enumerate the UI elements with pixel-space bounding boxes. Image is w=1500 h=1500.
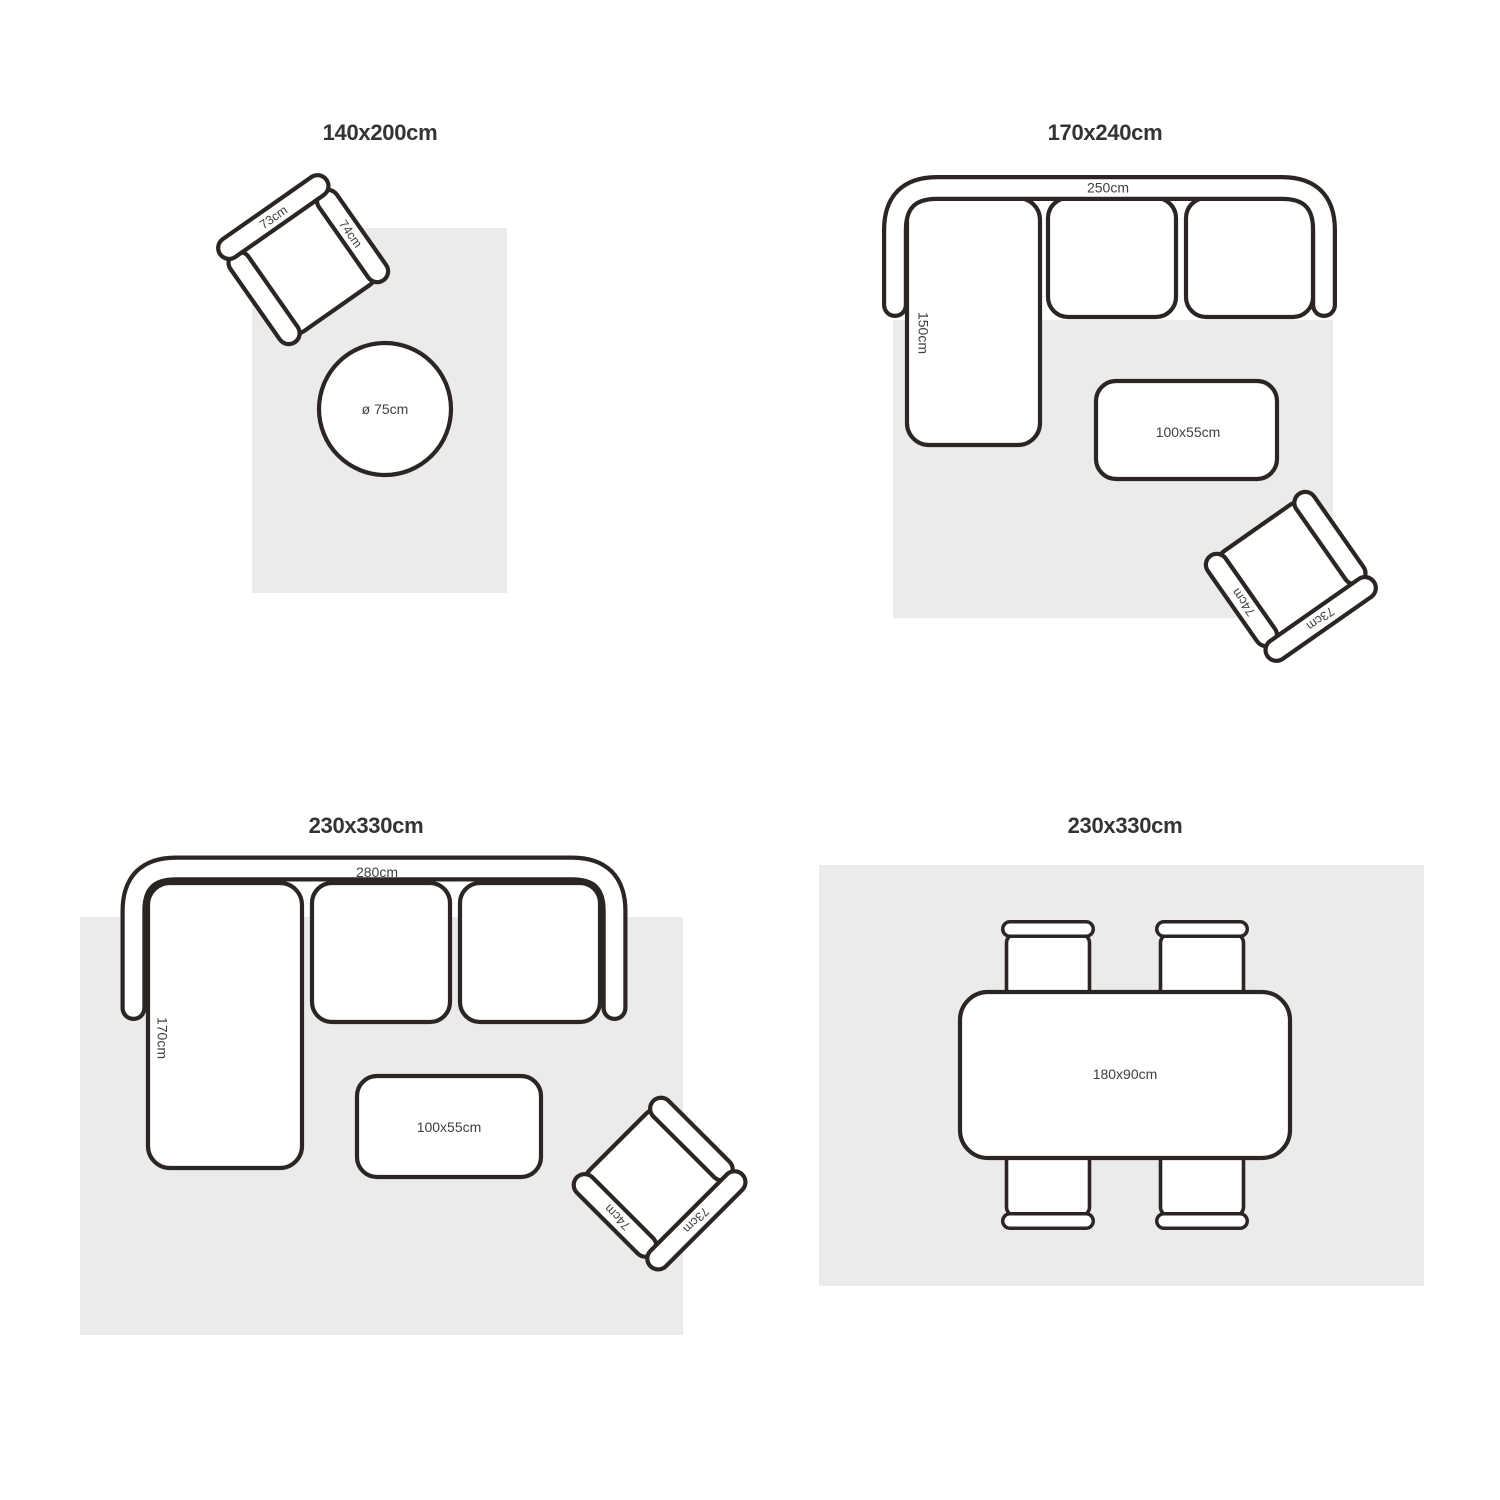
dining-chair bbox=[1007, 1150, 1090, 1221]
panel-rug-230x330-living: 230x330cm 280cm 170cm 100x55cm 73cm 74cm bbox=[80, 813, 739, 1335]
dining-table-size-label: 180x90cm bbox=[1093, 1066, 1158, 1082]
sofa-chaise-depth-label: 150cm bbox=[916, 312, 932, 354]
coffee-table-size-label: 100x55cm bbox=[417, 1119, 482, 1135]
dining-chair bbox=[1161, 929, 1244, 1000]
panel-rug-170x240: 170x240cm 250cm 150cm 100x55cm 73cm 74cm bbox=[893, 120, 1369, 659]
sofa-width-label: 250cm bbox=[1087, 180, 1129, 196]
panel-title: 140x200cm bbox=[323, 120, 438, 145]
panel-title: 230x330cm bbox=[1068, 813, 1183, 838]
diagram-canvas: 140x200cm 73cm 74cm ø 75cm 170x240cm bbox=[0, 0, 1500, 1500]
sofa-seat bbox=[1048, 198, 1176, 317]
sofa-seat bbox=[460, 883, 600, 1022]
panel-rug-140x200: 140x200cm 73cm 74cm ø 75cm bbox=[225, 120, 507, 593]
dining-chair bbox=[1007, 929, 1090, 1000]
coffee-table-size-label: 100x55cm bbox=[1156, 424, 1221, 440]
panel-title: 170x240cm bbox=[1048, 120, 1163, 145]
sofa-width-label: 280cm bbox=[356, 864, 398, 880]
panel-title: 230x330cm bbox=[309, 813, 424, 838]
dining-chair bbox=[1161, 1150, 1244, 1221]
sofa-seat bbox=[312, 883, 450, 1022]
sofa-chaise-depth-label: 170cm bbox=[155, 1017, 171, 1059]
round-table-diameter-label: ø 75cm bbox=[362, 401, 409, 417]
panel-rug-230x330-dining: 230x330cm 180x90cm bbox=[819, 813, 1424, 1286]
rug-size-guide-diagram: 140x200cm 73cm 74cm ø 75cm 170x240cm bbox=[0, 0, 1500, 1500]
sofa-seat bbox=[1186, 198, 1313, 317]
